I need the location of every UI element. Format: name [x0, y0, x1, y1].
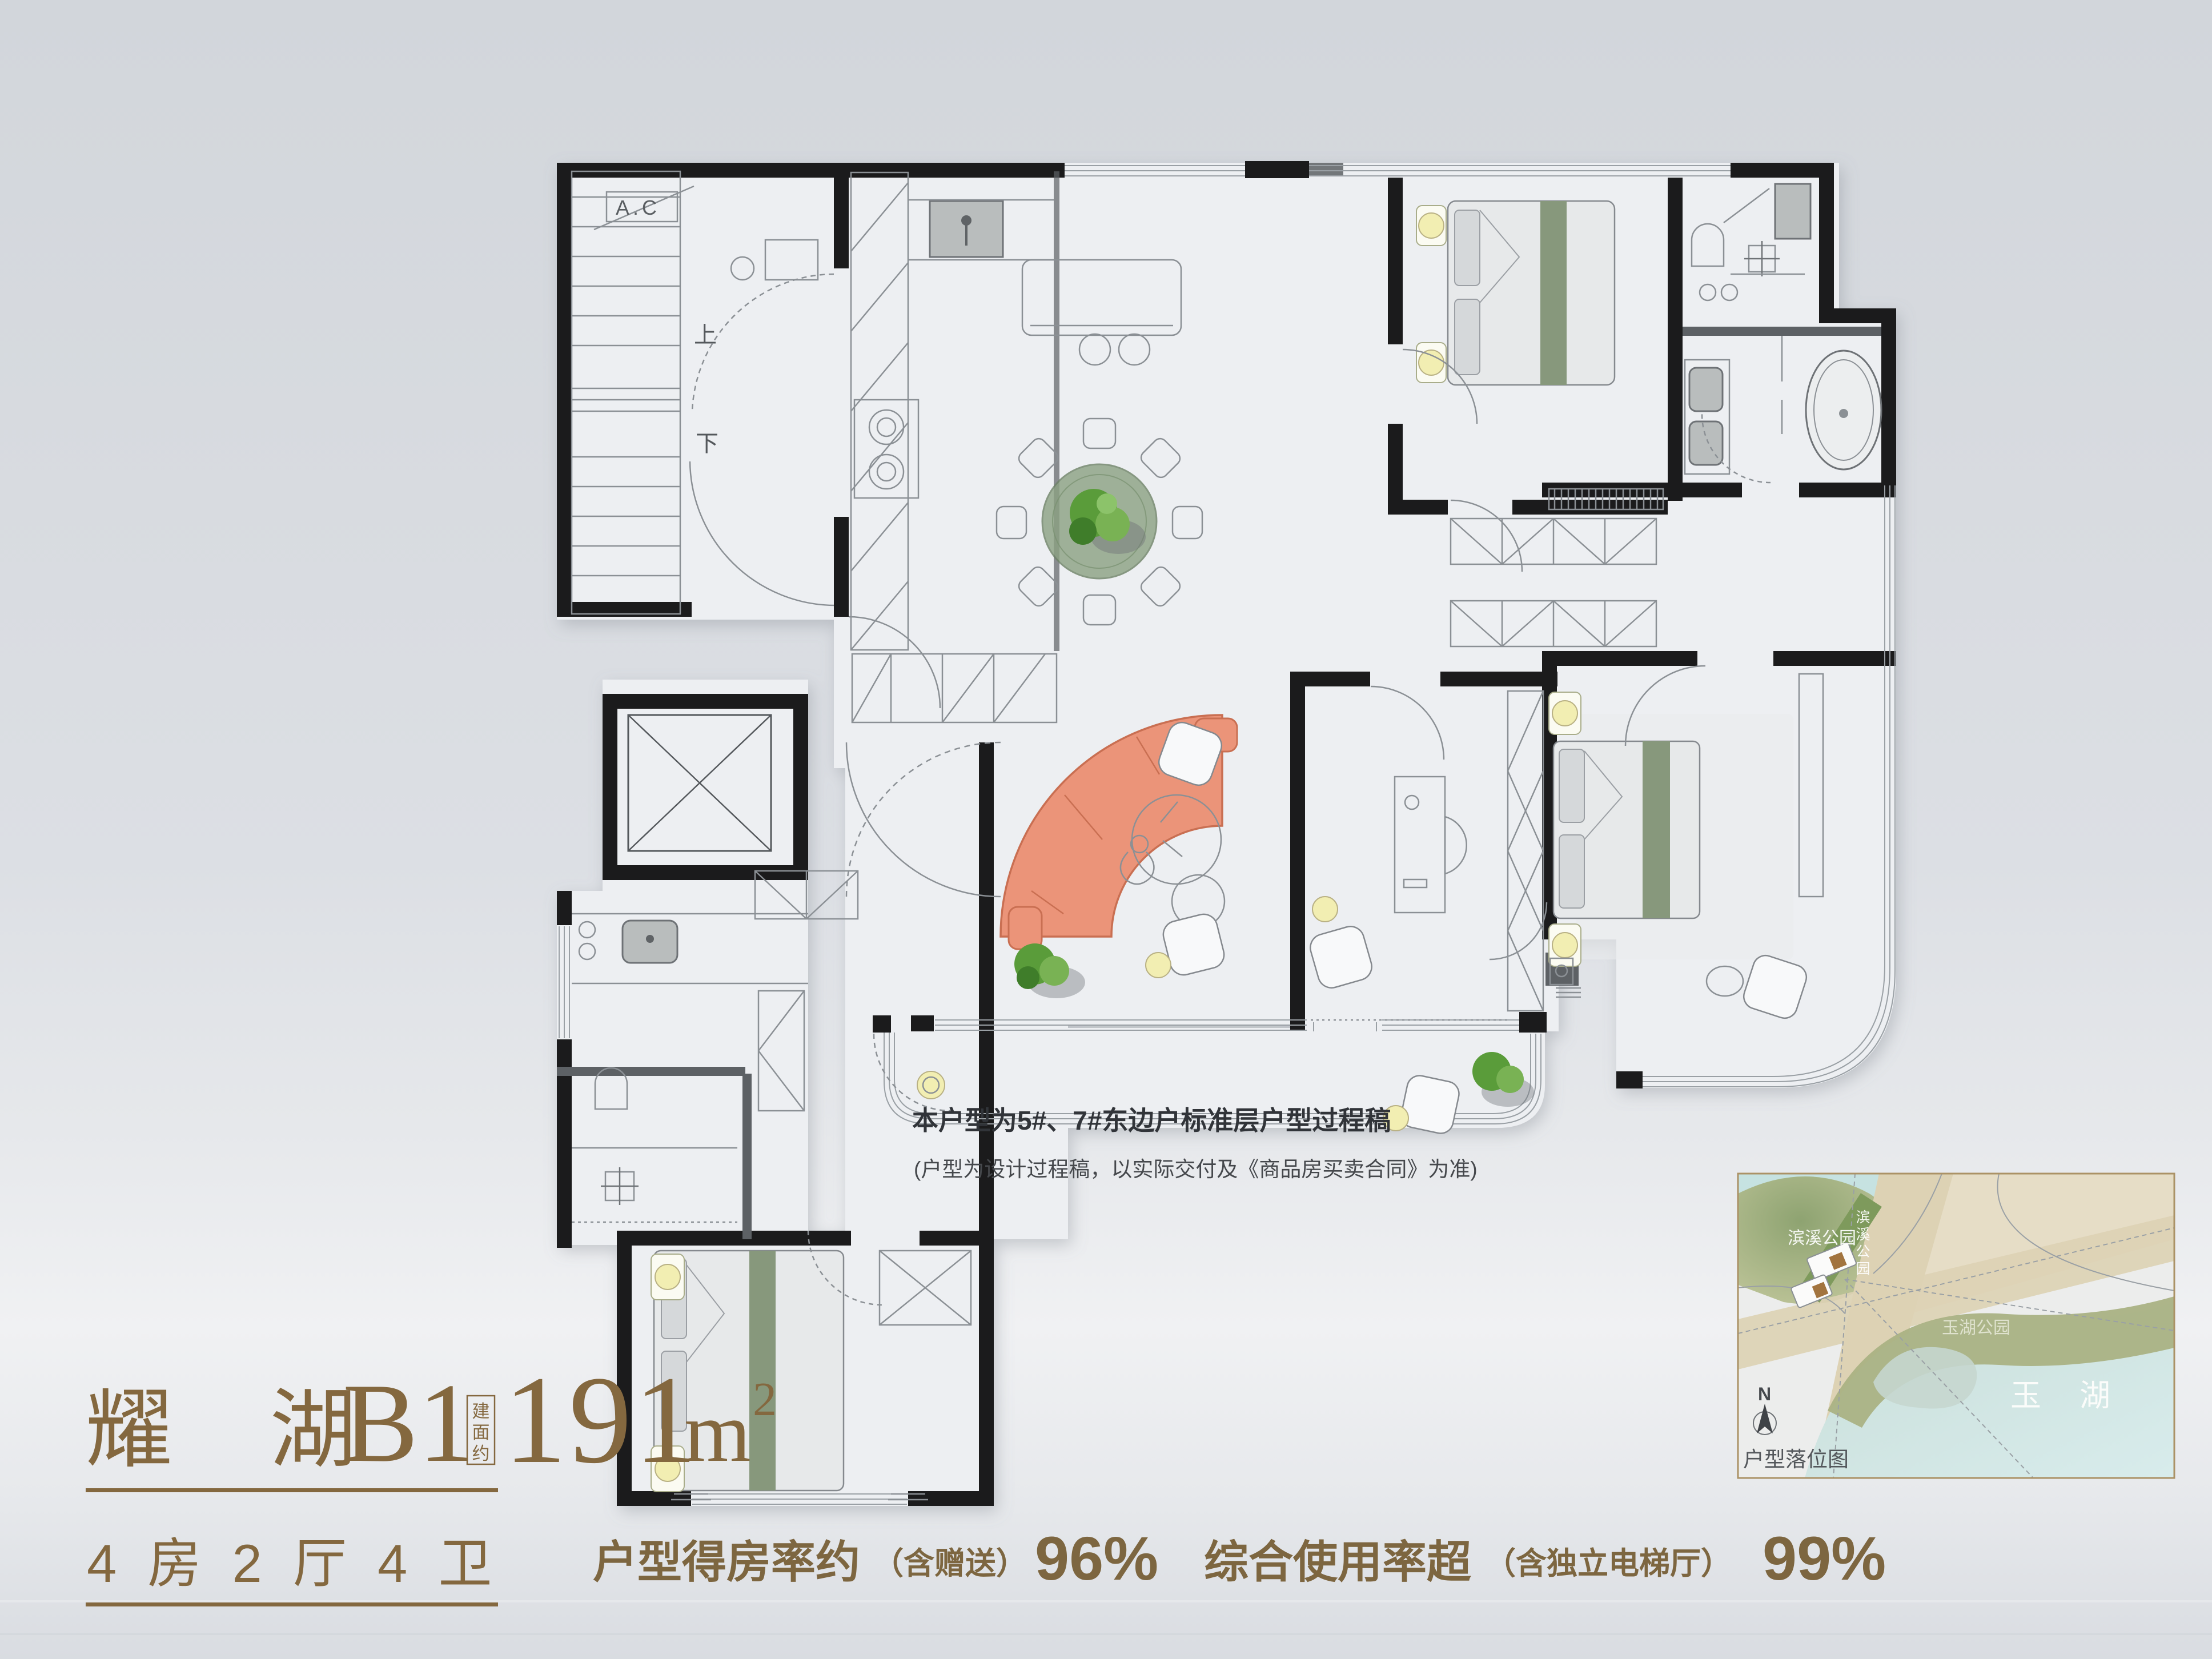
note-line1: 本户型为5#、7#东边户标准层户型过程稿	[912, 1106, 1391, 1135]
stat2-value: 99%	[1763, 1524, 1886, 1593]
stat2-label: 综合使用率超	[1204, 1537, 1472, 1587]
stair-down-label: 下	[696, 431, 718, 456]
sink	[1689, 421, 1723, 465]
map-lake-label: 玉 湖	[2010, 1379, 2125, 1413]
sink	[1689, 368, 1723, 411]
area-label-vertical: 建面约	[472, 1401, 490, 1464]
stat2-paren: （含独立电梯厅）	[1485, 1546, 1732, 1581]
area-unit: m	[684, 1385, 751, 1480]
stair-up-label: 上	[694, 323, 717, 348]
map-park1-label: 滨溪公园	[1788, 1229, 1856, 1248]
armchair	[1399, 1073, 1461, 1135]
map-park2-label: 玉湖公园	[1942, 1319, 2010, 1337]
compass-n-label: N	[1758, 1384, 1771, 1404]
location-map: 滨溪公园 滨溪公园 玉湖公园 玉 湖 N 户型落位图	[1738, 1174, 2174, 1478]
stat1-label: 户型得房率约	[593, 1537, 860, 1587]
sink	[1775, 184, 1810, 239]
map-caption: 户型落位图	[1743, 1448, 1849, 1471]
floor-plan: 上 下 A.C	[557, 161, 1896, 1506]
area-sup: 2	[753, 1373, 777, 1426]
efficiency-stats: 户型得房率约 （含赠送） 96% 综合使用率超 （含独立电梯厅） 99%	[593, 1524, 1886, 1593]
stat1-value: 96%	[1035, 1524, 1158, 1593]
spec-line: 4 房 2 厅 4 卫	[87, 1533, 500, 1593]
stat1-paren: （含赠送）	[873, 1546, 1027, 1581]
divider-top	[86, 1488, 498, 1492]
divider-bottom	[86, 1602, 498, 1606]
ac-label: A.C	[616, 196, 660, 219]
floor-lamp	[1312, 897, 1338, 922]
poster-canvas: 上 下 A.C	[0, 0, 2212, 1659]
floorplan-poster: 上 下 A.C	[0, 0, 2212, 1659]
note-line2: (户型为设计过程稿，以实际交付及《商品房买卖合同》为准)	[914, 1158, 1478, 1181]
area-value: 191	[504, 1350, 699, 1489]
unit-name: B1	[343, 1360, 475, 1485]
